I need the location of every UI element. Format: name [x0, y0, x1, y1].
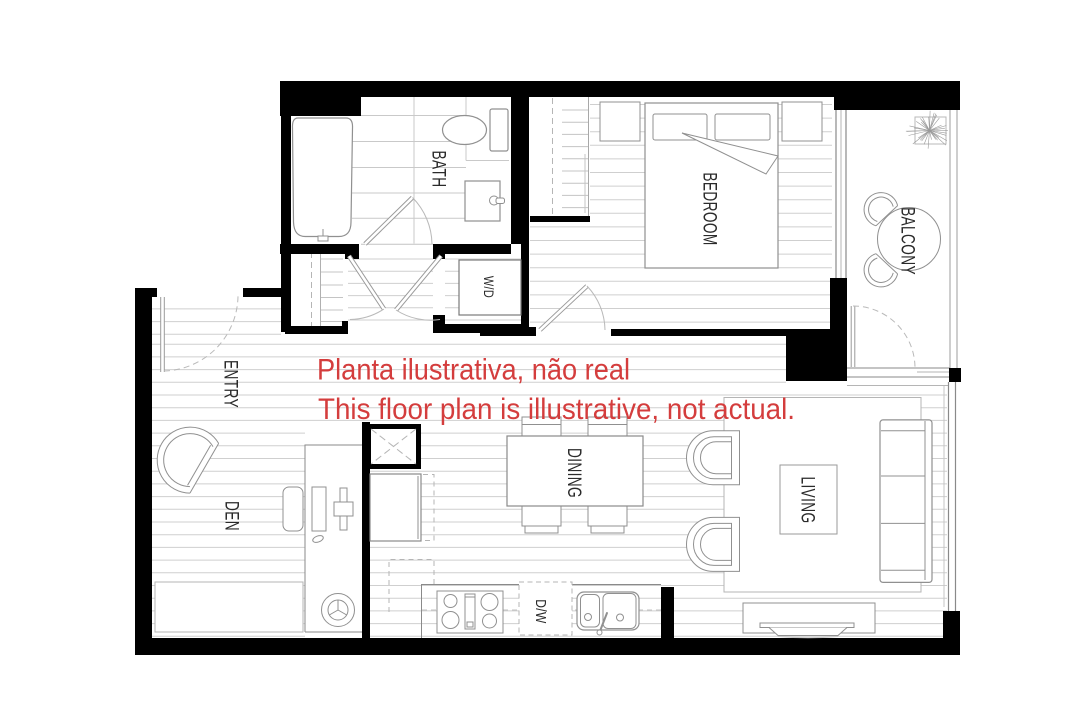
svg-text:W/D: W/D [481, 276, 497, 298]
svg-text:BEDROOM: BEDROOM [699, 172, 721, 245]
svg-text:LIVING: LIVING [797, 477, 819, 524]
svg-text:DINING: DINING [564, 448, 586, 498]
svg-text:BALCONY: BALCONY [897, 207, 919, 275]
svg-text:This floor plan is illustrativ: This floor plan is illustrative, not act… [318, 393, 795, 426]
svg-text:DEN: DEN [221, 501, 243, 531]
svg-text:BATH: BATH [428, 151, 450, 188]
svg-text:ENTRY: ENTRY [220, 360, 242, 408]
svg-text:Planta ilustrativa, não real: Planta ilustrativa, não real [317, 354, 630, 387]
svg-text:D/W: D/W [533, 599, 550, 624]
